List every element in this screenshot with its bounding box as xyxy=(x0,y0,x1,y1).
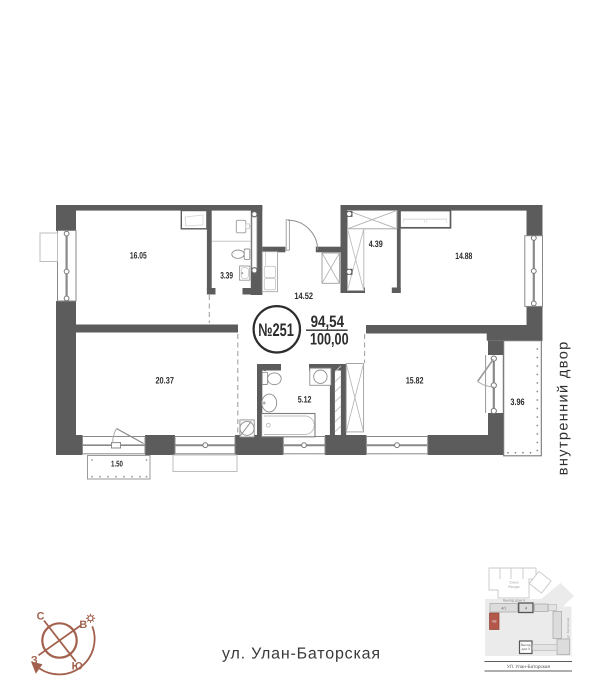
svg-text:16.05: 16.05 xyxy=(130,251,147,261)
svg-text:ул. Баторская: ул. Баторская xyxy=(566,617,570,638)
svg-text:В: В xyxy=(79,619,87,631)
svg-text:4.39: 4.39 xyxy=(369,239,383,249)
svg-text:5.12: 5.12 xyxy=(298,395,312,405)
svg-text:№251: №251 xyxy=(258,320,294,340)
svg-text:94,54: 94,54 xyxy=(311,313,345,331)
svg-text:Ю: Ю xyxy=(72,661,83,673)
svg-text:20.37: 20.37 xyxy=(155,376,174,386)
svg-text:1.50: 1.50 xyxy=(111,459,123,469)
svg-text:4/2: 4/2 xyxy=(492,620,497,624)
svg-text:ул. Улан-Баторская: ул. Улан-Баторская xyxy=(222,646,380,663)
svg-text:14.88: 14.88 xyxy=(455,251,472,261)
svg-text:3.39: 3.39 xyxy=(220,271,233,281)
svg-text:УЛ. Улан-Баторская: УЛ. Улан-Баторская xyxy=(507,664,551,669)
svg-text:дом 3: дом 3 xyxy=(521,647,530,651)
svg-text:С: С xyxy=(37,611,45,623)
svg-text:15.82: 15.82 xyxy=(406,376,424,386)
svg-text:14.52: 14.52 xyxy=(294,291,313,301)
svg-text:З: З xyxy=(31,654,38,666)
svg-text:Выход дом 4: Выход дом 4 xyxy=(503,599,525,603)
svg-text:Ресурс: Ресурс xyxy=(508,585,520,589)
svg-text:внутренний двор: внутренний двор xyxy=(555,342,571,476)
svg-text:3.96: 3.96 xyxy=(510,397,524,407)
svg-text:Союз: Союз xyxy=(510,581,519,585)
svg-text:4/1: 4/1 xyxy=(501,605,506,610)
svg-text:100,00: 100,00 xyxy=(310,330,349,348)
